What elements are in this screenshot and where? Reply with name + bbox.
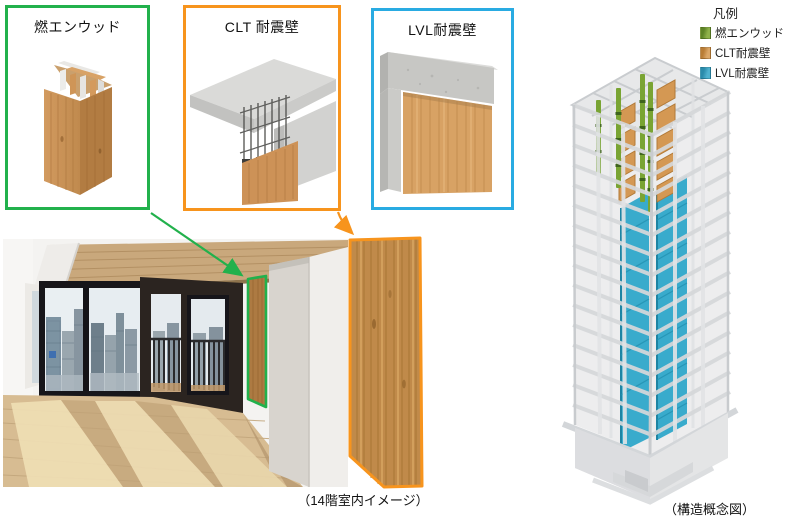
detail-box-clt: CLT 耐震壁 (183, 5, 341, 211)
window-pane-city-view (45, 288, 83, 391)
legend-swatch-blue (700, 67, 711, 79)
window-wall (39, 281, 149, 399)
legend-item-clt: CLT耐震壁 (700, 46, 784, 59)
panel-title-moen-wood: 燃エンウッド (8, 17, 147, 37)
legend-swatch-green (700, 27, 711, 39)
clt-panel-highlight (346, 234, 428, 492)
structural-concept-building (553, 40, 773, 515)
legend-item-lvl: LVL耐震壁 (700, 66, 784, 79)
balcony-door (187, 295, 229, 395)
panel-title-lvl: LVL耐震壁 (374, 20, 511, 40)
clt-wall-illustration (186, 39, 338, 207)
window-pane-city-view (89, 288, 140, 391)
balcony-window (151, 294, 181, 392)
moen-wood-column-illustration (8, 39, 147, 207)
near-wall (269, 247, 348, 487)
room-caption: （14階室内イメージ） (288, 490, 438, 509)
room-interior-photo (3, 239, 348, 487)
lvl-wall-illustration (374, 42, 511, 204)
legend-title: 凡例 (713, 3, 784, 22)
legend: 凡例 燃エンウッド CLT耐震壁 LVL耐震壁 (700, 3, 784, 86)
orange-callout-arrow (338, 212, 351, 232)
legend-item-moen-wood: 燃エンウッド (700, 26, 784, 39)
detail-box-moen-wood: 燃エンウッド (5, 5, 150, 210)
building-caption: （構造概念図） (637, 499, 782, 518)
dark-wall (140, 277, 243, 417)
legend-swatch-orange (700, 47, 711, 59)
moen-wood-column-highlight (248, 276, 266, 407)
detail-box-lvl: LVL耐震壁 (371, 8, 514, 210)
panel-title-clt: CLT 耐震壁 (186, 17, 338, 37)
